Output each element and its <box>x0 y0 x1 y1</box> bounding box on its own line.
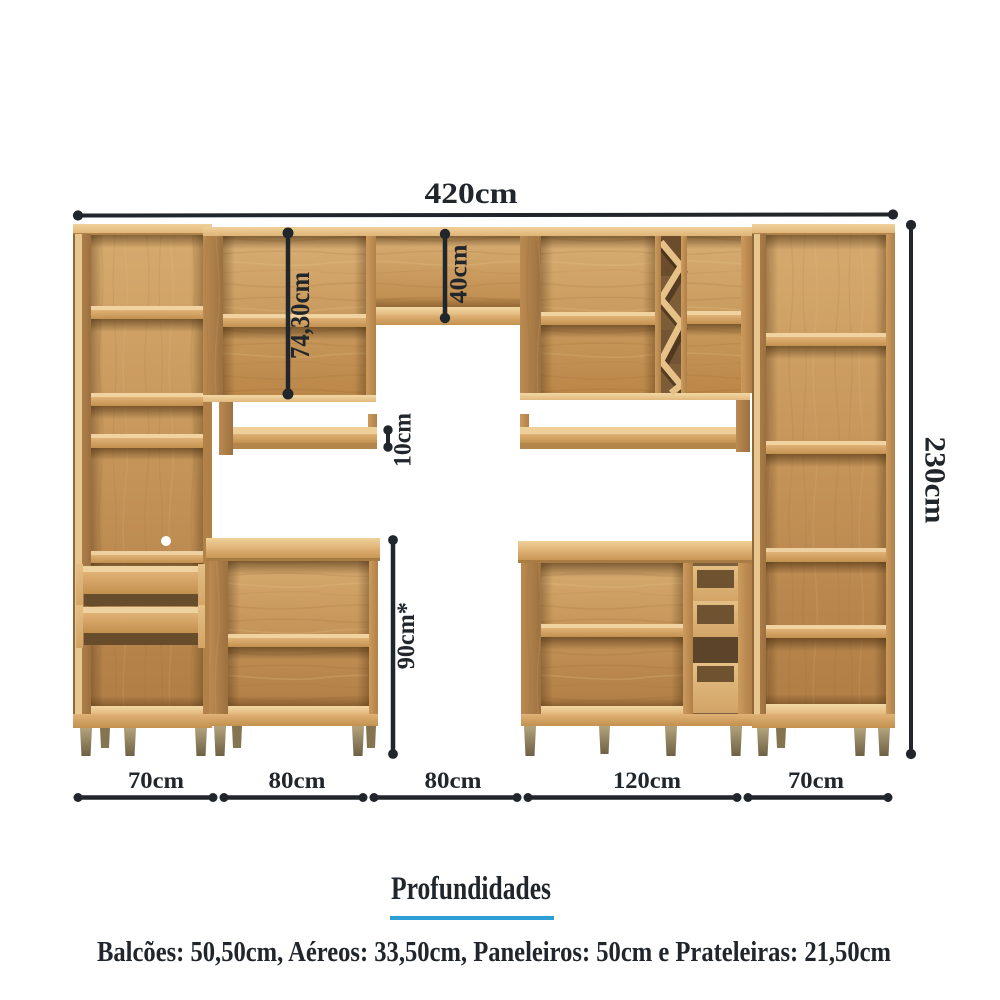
svg-text:120cm: 120cm <box>613 768 681 793</box>
svg-text:80cm: 80cm <box>425 768 482 793</box>
svg-text:Profundidades: Profundidades <box>391 871 551 907</box>
svg-text:80cm: 80cm <box>269 768 326 793</box>
svg-text:230cm: 230cm <box>919 437 952 524</box>
svg-text:70cm: 70cm <box>788 768 844 793</box>
svg-text:420cm: 420cm <box>425 177 518 210</box>
svg-text:Balcões: 50,50cm, Aéreos: 33,5: Balcões: 50,50cm, Aéreos: 33,50cm, Panel… <box>97 937 891 968</box>
svg-text:40cm: 40cm <box>446 244 473 303</box>
svg-text:10cm: 10cm <box>390 413 417 467</box>
svg-text:90cm*: 90cm* <box>393 602 420 669</box>
svg-text:74,30cm: 74,30cm <box>285 272 315 359</box>
svg-text:70cm: 70cm <box>128 768 184 793</box>
